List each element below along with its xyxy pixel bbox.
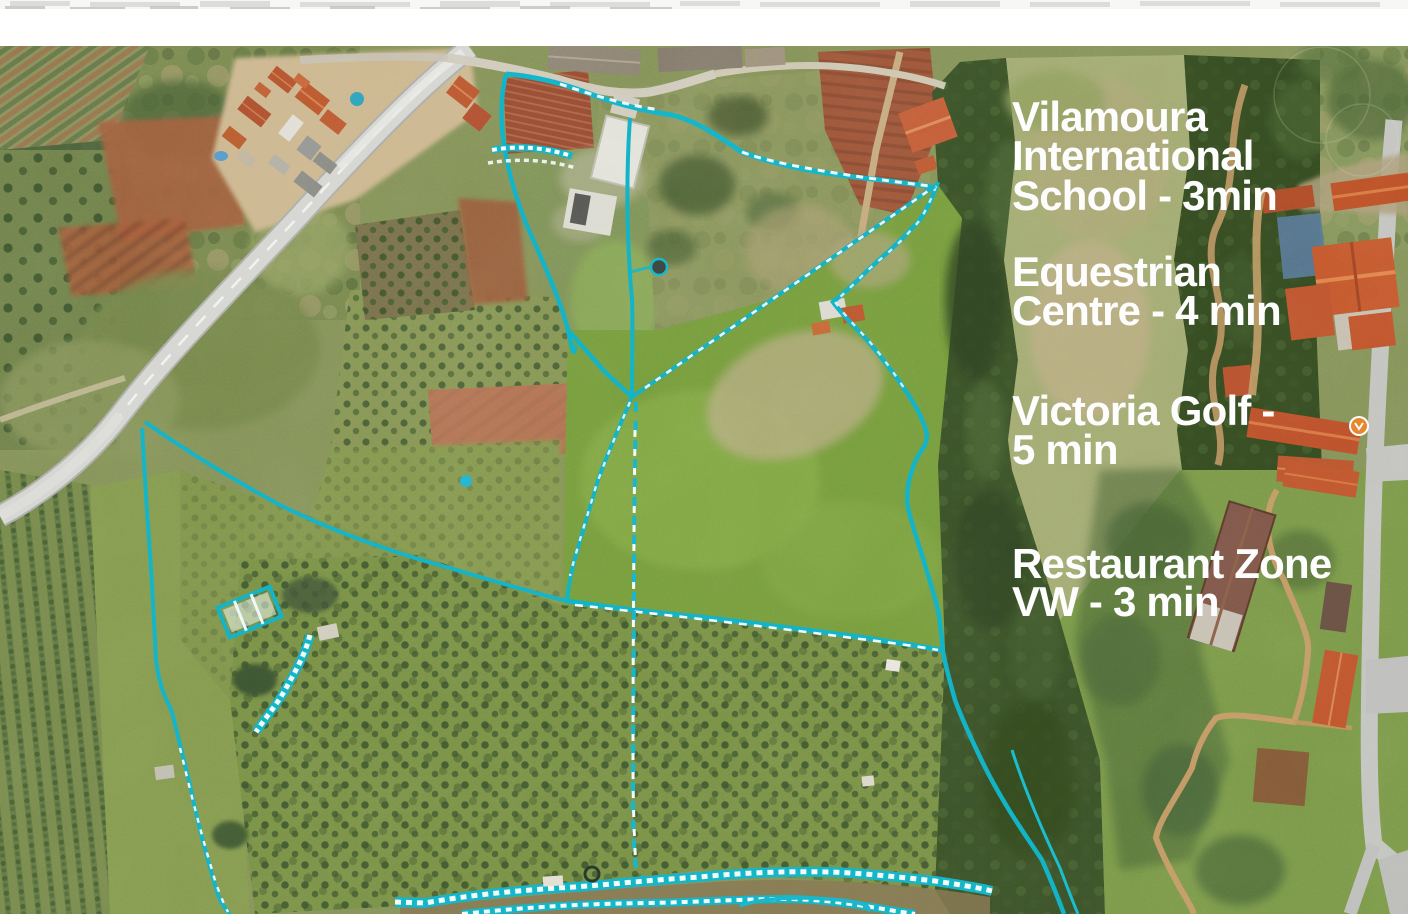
svg-text:Centre - 4 min: Centre - 4 min — [1012, 287, 1281, 334]
svg-text:School - 3min: School - 3min — [1012, 172, 1277, 219]
svg-text:5 min: 5 min — [1012, 426, 1118, 473]
svg-text:VW - 3 min: VW - 3 min — [1012, 578, 1219, 625]
